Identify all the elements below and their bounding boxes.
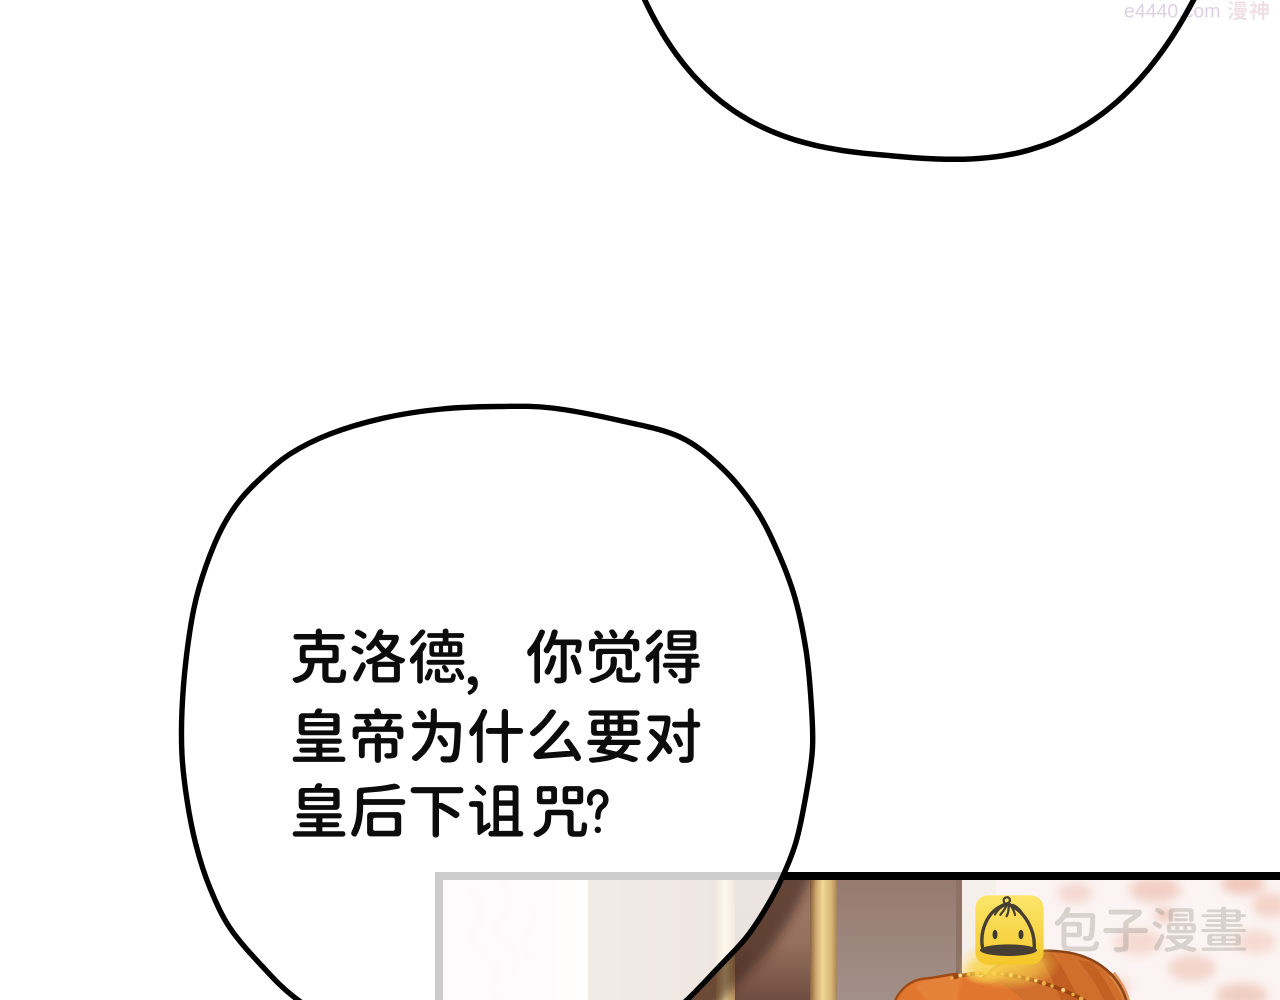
svg-text:e4440.com: e4440.com <box>1124 1 1220 23</box>
